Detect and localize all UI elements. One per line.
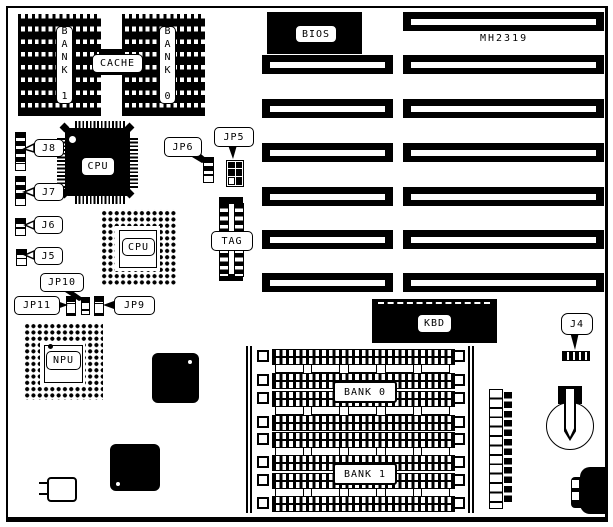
cache-label: CACHE <box>92 54 143 73</box>
jumper-jp11-label: JP11 <box>14 296 60 315</box>
jumper-jp9-label: JP9 <box>114 296 155 315</box>
simm-bank0-label: BANK 0 <box>333 381 397 403</box>
tag-label: TAG <box>211 231 253 251</box>
jumper-j4-label: J4 <box>561 313 593 335</box>
kbd-label: KBD <box>417 314 452 333</box>
jumper-j6-label: J6 <box>34 216 63 234</box>
jumper-jp5-label: JP5 <box>214 127 254 147</box>
callout-pointers <box>0 0 613 527</box>
cache-bank0-label: BANK 0 <box>159 26 176 104</box>
cache-bank1-label: BANK 1 <box>56 26 73 104</box>
jumper-j8-label: J8 <box>34 139 64 157</box>
npu-label: NPU <box>46 351 81 370</box>
jumper-jp10-label: JP10 <box>40 273 84 292</box>
cpu-label: CPU <box>81 157 115 176</box>
cpu-socket-label: CPU <box>122 238 155 256</box>
jumper-jp6-label: JP6 <box>164 137 202 157</box>
simm-bank1-label: BANK 1 <box>333 463 397 485</box>
motherboard-diagram: BANK 1 BANK 0 CACHE BIOS MH2319 CPU TAG <box>0 0 613 527</box>
bios-label: BIOS <box>295 25 337 43</box>
jumper-j7-label: J7 <box>34 183 64 201</box>
jumper-j5-label: J5 <box>34 247 63 265</box>
